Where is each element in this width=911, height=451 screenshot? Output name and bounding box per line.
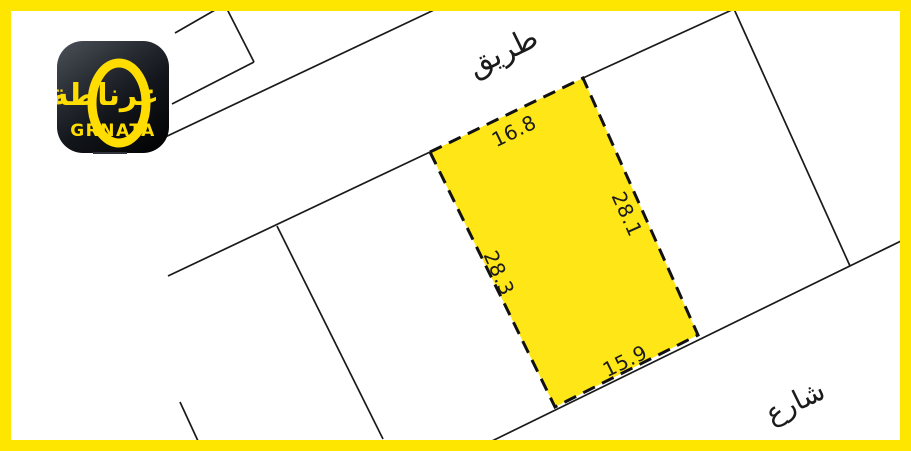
road-edge-left-segment [168, 152, 430, 276]
neighbor-plot-topleft-edge-c [172, 62, 254, 104]
road-upper-line [161, 10, 434, 139]
cadastral-plot-map: طريق شارع 16.8 28.1 28.3 15.9 غرناطة GRN… [0, 0, 911, 451]
neighbor-boundary-left [277, 226, 383, 439]
logo-underline [93, 152, 127, 154]
highlighted-plot [430, 78, 698, 407]
road-edge-right-segment [583, 9, 734, 78]
grnata-logo: غرناطة GRNATA [57, 41, 169, 153]
logo-arabic-wordmark: غرناطة [57, 81, 159, 111]
neighbor-plot-topleft-edge-b [227, 9, 254, 62]
neighbor-boundary-farleft [180, 402, 198, 441]
logo-latin-wordmark: GRNATA [57, 123, 169, 140]
neighbor-boundary-right [734, 9, 850, 266]
neighbor-plot-topleft-edge-a [175, 10, 215, 33]
